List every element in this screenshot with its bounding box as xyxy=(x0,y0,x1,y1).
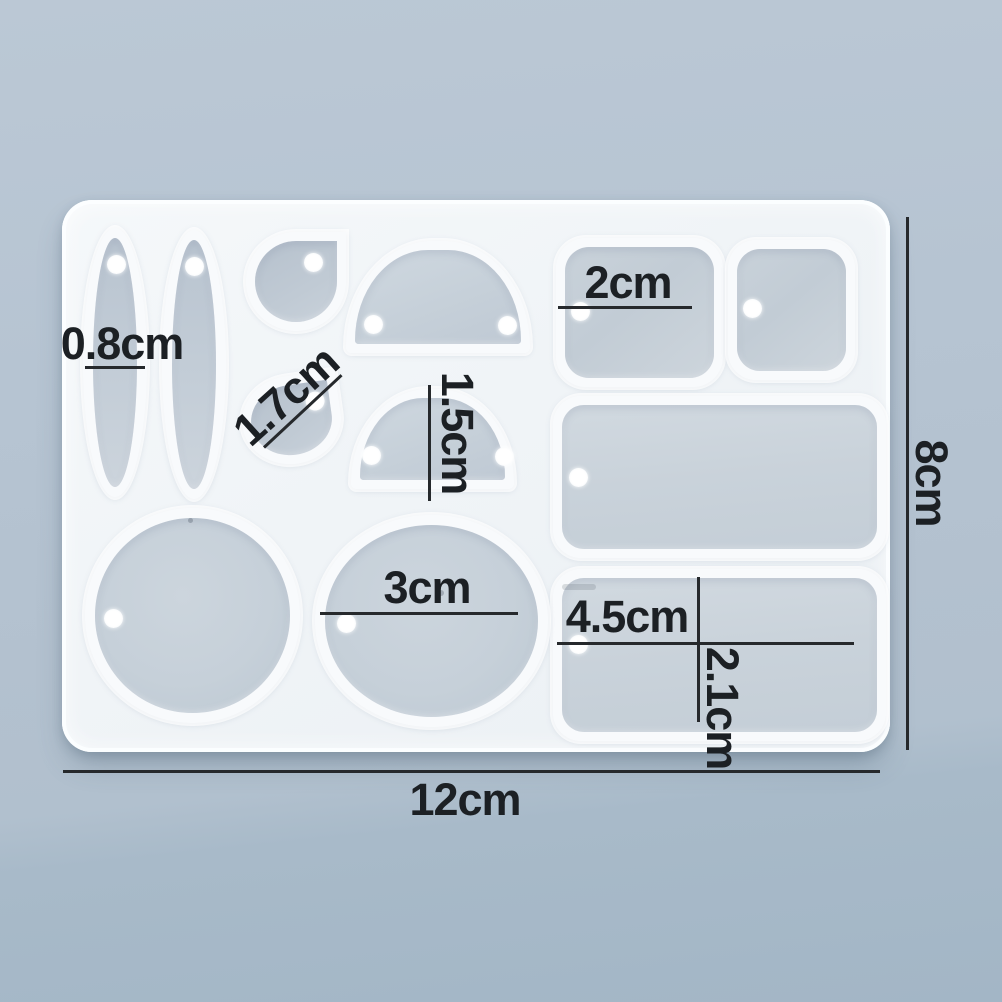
dimension-label-square-size: 2cm xyxy=(553,259,703,307)
dimension-line-mold-width xyxy=(63,770,880,773)
cavity-well xyxy=(562,405,877,549)
surface-speck xyxy=(562,584,596,590)
cavity-circle-1 xyxy=(85,508,300,723)
dimension-line-bar-width xyxy=(85,366,145,369)
dimension-line-arch-width xyxy=(428,385,431,501)
pendant-hole xyxy=(743,299,762,318)
dimension-line-circle-diameter xyxy=(320,612,518,615)
pendant-hole xyxy=(337,614,356,633)
pendant-hole xyxy=(569,468,588,487)
cavity-well xyxy=(325,525,538,717)
pendant-hole xyxy=(304,253,323,272)
cavity-rim xyxy=(346,241,530,353)
cavity-rim xyxy=(553,396,886,558)
cavity-well xyxy=(255,241,337,322)
dimension-label-mold-width: 12cm xyxy=(390,776,540,824)
pendant-hole xyxy=(364,315,383,334)
pendant-hole xyxy=(185,257,204,276)
product-photo: 0.8cm 1.7cm 1.5cm 2cm 3cm 4.5cm 2.1cm 12… xyxy=(0,0,1002,1002)
cavity-rectangle-middle xyxy=(553,396,886,558)
pendant-hole xyxy=(495,447,514,466)
cavity-teardrop-1 xyxy=(246,232,346,331)
pendant-hole xyxy=(498,316,517,335)
dimension-line-square-size xyxy=(558,306,692,309)
pendant-hole xyxy=(107,255,126,274)
cavity-circle-2 xyxy=(315,515,548,727)
pendant-hole xyxy=(104,609,123,628)
cavity-rim xyxy=(246,232,346,331)
dimension-label-bar-width: 0.8cm xyxy=(47,320,197,368)
cavity-arch-large xyxy=(346,241,530,353)
cavity-square-2 xyxy=(728,240,855,380)
dimension-label-mold-height: 8cm xyxy=(907,408,955,558)
surface-speck xyxy=(188,518,193,523)
dimension-label-circle-diameter: 3cm xyxy=(352,564,502,612)
cavity-well xyxy=(95,518,290,713)
dimension-label-arch-width: 1.5cm xyxy=(433,358,481,508)
dimension-label-tag-width: 4.5cm xyxy=(552,593,702,641)
dimension-label-tag-height: 2.1cm xyxy=(698,633,746,783)
pendant-hole xyxy=(362,446,381,465)
